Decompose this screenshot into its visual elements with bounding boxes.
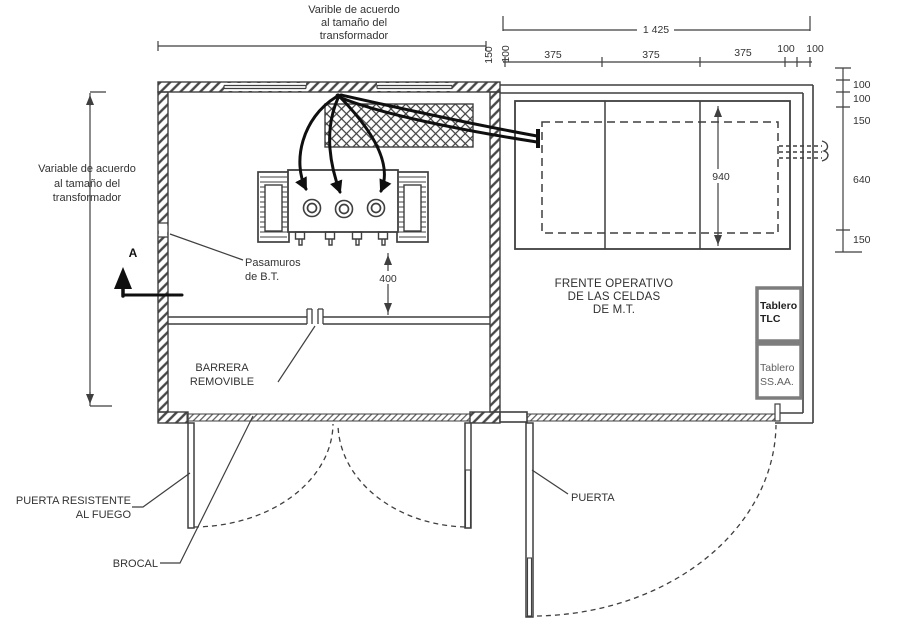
transformer bbox=[258, 170, 428, 245]
barrera-label-l1: BARRERA bbox=[195, 362, 249, 374]
dim-seg-3: 375 bbox=[734, 47, 752, 59]
dim-left-variable: Variable de acuerdo al tamaño del transf… bbox=[38, 92, 136, 406]
bottom-connectors bbox=[296, 232, 388, 245]
mt-cells-cabinet bbox=[515, 101, 790, 249]
dim-seg-2: 375 bbox=[642, 49, 660, 61]
tablero-tlc-l2: TLC bbox=[760, 313, 781, 325]
brocal-threshold-left bbox=[187, 414, 470, 421]
leader-brocal bbox=[160, 416, 253, 563]
dim-seg-4: 100 bbox=[777, 43, 795, 55]
leader-pasamuros bbox=[170, 234, 243, 260]
dim-right-1: 100 bbox=[853, 79, 871, 91]
top-note-l3: transformador bbox=[320, 30, 389, 42]
puerta-fuego-label-l1: PUERTA RESISTENTE bbox=[16, 495, 131, 507]
leader-lines bbox=[132, 234, 568, 563]
dim-rotated-100: 100 bbox=[500, 45, 512, 63]
tablero-ssaa-panel: Tablero SS.AA. bbox=[757, 344, 801, 398]
frente-label-l2: DE LAS CELDAS bbox=[568, 291, 661, 303]
leader-puerta bbox=[532, 470, 568, 494]
right-room-wall-stub bbox=[500, 412, 527, 422]
dim-right-3: 150 bbox=[853, 115, 871, 127]
left-note-l2: al tamaño del bbox=[54, 178, 120, 190]
dim-right-2: 100 bbox=[853, 93, 871, 105]
top-wall-vent-2 bbox=[377, 83, 452, 91]
tablero-ssaa-l2: SS.AA. bbox=[760, 376, 794, 388]
removable-barrier bbox=[168, 309, 490, 324]
pasamuros-bt-wall-gap bbox=[158, 223, 169, 237]
tablero-ssaa-l1: Tablero bbox=[760, 362, 795, 374]
tablero-tlc-panel: Tablero TLC bbox=[757, 288, 801, 341]
top-note-l1: Varible de acuerdo bbox=[308, 4, 400, 16]
cable-end-flange bbox=[536, 129, 540, 148]
right-door-strike-post bbox=[775, 404, 780, 421]
dim-400: 400 bbox=[372, 253, 404, 315]
door-post-right bbox=[470, 412, 500, 423]
tablero-tlc-l1: Tablero bbox=[760, 300, 797, 312]
door-swing-arc-left bbox=[194, 424, 333, 527]
puerta-fuego-label-l2: AL FUEGO bbox=[76, 509, 132, 521]
door-post-left bbox=[158, 412, 188, 423]
mt-door-swing-arc bbox=[537, 425, 776, 616]
dim-seg-1: 375 bbox=[544, 49, 562, 61]
frente-label-l3: DE M.T. bbox=[593, 304, 635, 316]
dim-top-left-variable: Varible de acuerdo al tamaño del transfo… bbox=[158, 4, 512, 64]
floor-plan-diagram: 940 bbox=[0, 0, 920, 626]
dim-overall-1425: 1 425 bbox=[503, 16, 810, 36]
fire-door-leaf-left bbox=[188, 423, 194, 528]
dim-top-segments: 375 375 375 100 100 bbox=[503, 43, 824, 67]
dim-right-4: 640 bbox=[853, 174, 871, 186]
left-note-l1: Variable de acuerdo bbox=[38, 163, 136, 175]
top-wall-vent-1 bbox=[224, 83, 306, 91]
puerta-label: PUERTA bbox=[571, 492, 615, 504]
leader-barrera bbox=[278, 326, 315, 382]
dim-right-5: 150 bbox=[853, 234, 871, 246]
section-marker-a: A bbox=[114, 246, 182, 296]
dim-celda-front: 940 bbox=[712, 171, 730, 183]
floor-plan-svg: 940 bbox=[0, 0, 920, 626]
left-note-l3: transformador bbox=[53, 192, 122, 204]
radiator-right bbox=[397, 172, 428, 242]
frente-label-l1: FRENTE OPERATIVO bbox=[555, 278, 674, 290]
brocal-label: BROCAL bbox=[113, 558, 158, 570]
mt-room-door bbox=[526, 423, 776, 617]
barrera-label-l2: REMOVIBLE bbox=[190, 376, 254, 388]
pasamuros-label-l2: de B.T. bbox=[245, 271, 279, 283]
radiator-left bbox=[258, 172, 289, 242]
dim-rotated-150: 150 bbox=[483, 46, 495, 64]
brocal-threshold-right bbox=[527, 414, 775, 421]
dim-overall-label: 1 425 bbox=[643, 24, 669, 36]
section-label: A bbox=[129, 246, 138, 260]
bt-bushings bbox=[304, 200, 385, 218]
pasamuros-label-l1: Pasamuros bbox=[245, 257, 301, 269]
door-swing-arc-right bbox=[338, 424, 465, 527]
dim-bt-clearance: 400 bbox=[379, 273, 397, 285]
leader-puerta-fuego bbox=[132, 473, 190, 507]
dim-right-chain: 100 100 150 640 150 bbox=[835, 68, 871, 252]
dim-seg-5: 100 bbox=[806, 43, 824, 55]
top-note-l2: al tamaño del bbox=[321, 17, 387, 29]
fire-door-double bbox=[188, 423, 471, 528]
